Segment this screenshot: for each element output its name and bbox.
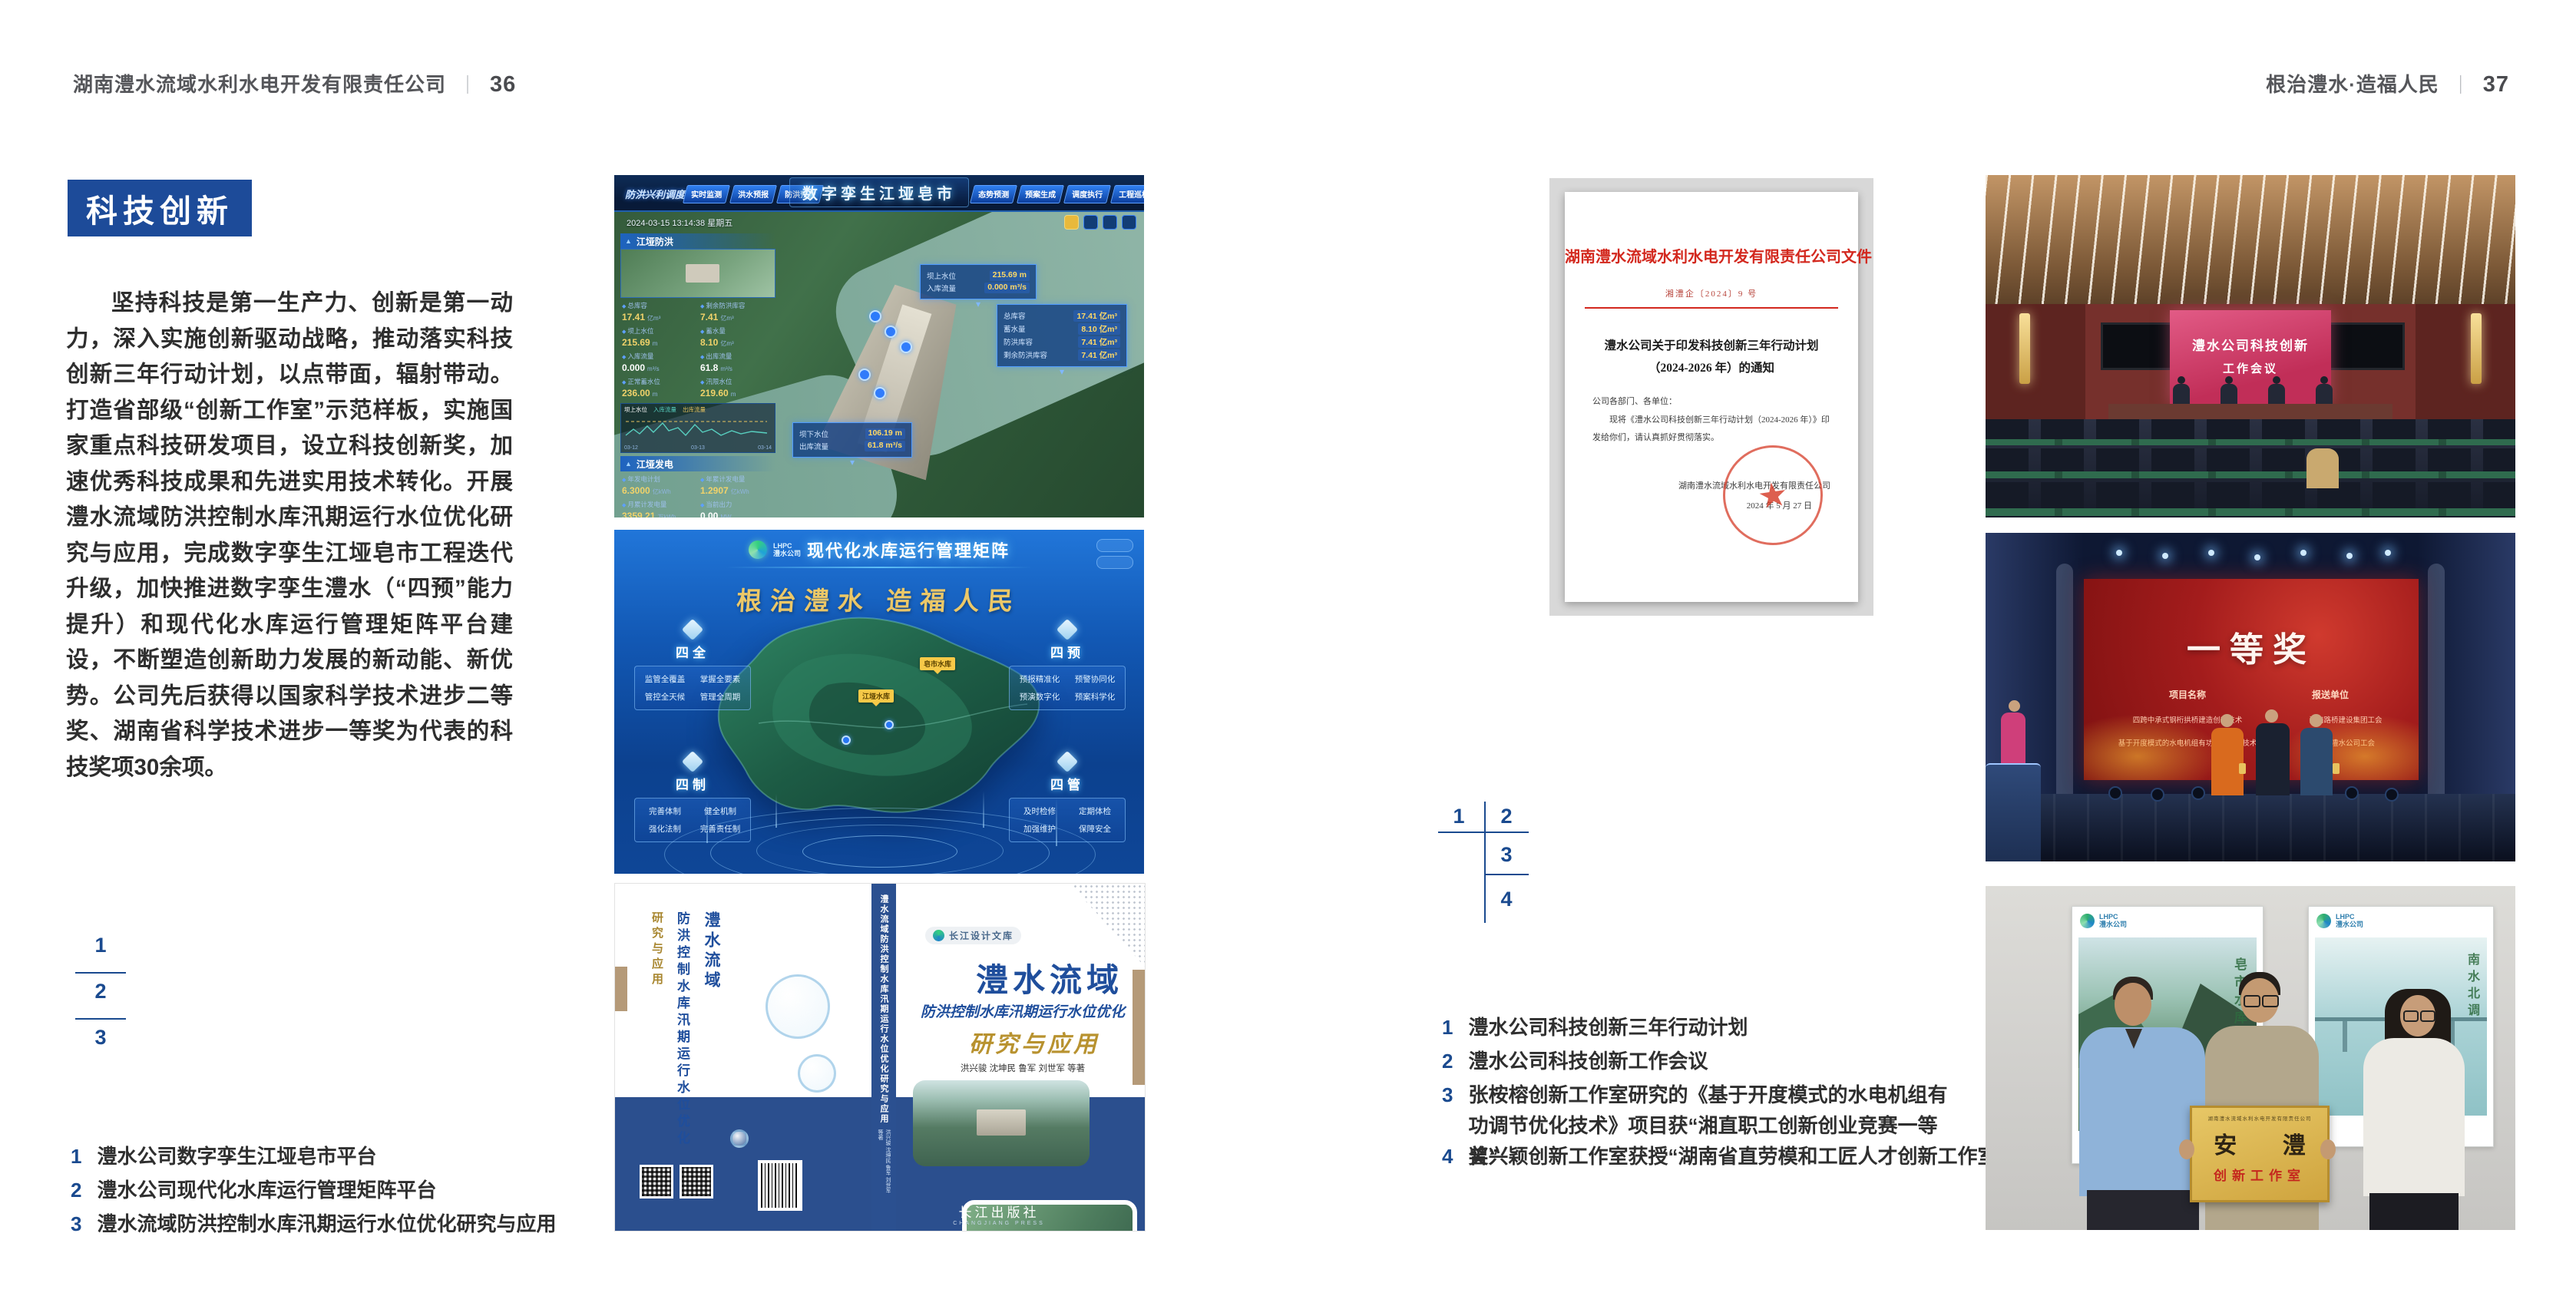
caption-number: 1 xyxy=(1442,1012,1453,1043)
wall-tv xyxy=(2326,322,2405,370)
screen-title-line2: 工作会议 xyxy=(2170,360,2331,376)
map-marker-zaoshi: 皂市水库 xyxy=(920,657,955,670)
stage-light-icon xyxy=(2162,553,2168,559)
map-dot xyxy=(842,736,851,745)
speaker-figure xyxy=(2316,384,2333,404)
caption-text: 澧水公司科技创新工作会议 xyxy=(1468,1046,1708,1076)
desk-mat-row xyxy=(1986,508,2515,516)
twin-sidebar: 江垭防洪 总库容17.41亿m³ 剩余防洪库容7.41亿m³ 坝上水位215.6… xyxy=(620,233,775,511)
poster-logo: LHPC 澧水公司 xyxy=(2080,913,2127,928)
speaker-head xyxy=(2225,376,2233,384)
desk-mat-row xyxy=(1986,471,2515,478)
twin-datetime: 2024-03-15 13:14:38 星期五 xyxy=(627,217,732,229)
caption-number: 2 xyxy=(71,1175,81,1205)
floor-light-fixture xyxy=(2385,788,2399,802)
stat: 年发电计划6.3000亿kWh xyxy=(622,474,696,498)
speaker-figure xyxy=(2268,384,2285,404)
lhpc-logo-text: LHPC 澧水公司 xyxy=(2099,913,2127,928)
person-blue-polo xyxy=(2079,1027,2205,1196)
caption-text: 澧水公司数字孪生江垭皂市平台 xyxy=(97,1141,376,1172)
caption-number: 4 xyxy=(1442,1141,1453,1172)
person-trousers xyxy=(2369,1193,2459,1230)
poster-right-title: 南水北调 xyxy=(2462,953,2481,1045)
lhpc-logo-text: LHPC 澧水公司 xyxy=(773,542,801,557)
award-title: 一等奖 xyxy=(2084,622,2419,671)
screen-title-line1: 澧水公司科技创新 xyxy=(2170,335,2331,354)
meeting-screen: 澧水公司科技创新 工作会议 xyxy=(2170,310,2331,404)
chart-lines xyxy=(624,414,769,441)
figure-digital-twin-platform: 防洪兴利调度 实时监测 洪水预报 防洪预警 数字孪生江垭皂市 态势预测 预案生成… xyxy=(614,175,1144,517)
plaque-subtitle: 创新工作室 xyxy=(2192,1165,2327,1184)
right-index-vline xyxy=(1484,802,1486,923)
figure-award-ceremony-photo: 一等奖 项目名称 报送单位 四跨中承式钢桁拱桥建造创新技术 湖南路桥建设集团工会… xyxy=(1986,533,2515,861)
twin-title: 数字孪生江垭皂市 xyxy=(789,177,969,207)
callout-capacity: 总库容17.41 亿m³ 蓄水量8.10 亿m³ 防洪库容7.41 亿m³ 剩余… xyxy=(997,304,1127,367)
stat: 入库流量0.000m³/s xyxy=(622,352,696,375)
presenter-suit xyxy=(2256,723,2290,795)
water-drop-graphic xyxy=(730,1129,749,1148)
document-red-header: 湖南澧水流域水利水电开发有限责任公司文件 xyxy=(1565,244,1858,266)
water-level-chart: 坝上水位 入库流量 出库流量 03-12 03-13 03-14 xyxy=(620,403,775,453)
header-glow-line xyxy=(726,567,1033,568)
speaker-head xyxy=(2178,376,2185,384)
column-project: 项目名称 xyxy=(2130,688,2245,701)
right-index-1: 1 xyxy=(1443,805,1474,828)
back-accent-bar xyxy=(615,967,627,1011)
stat: 月累计发电量3359.21万kWh xyxy=(622,500,696,517)
tab-project-inspection: 工程巡检 xyxy=(1110,185,1144,203)
callout-downstream: 坝下水位106.19 m 出库流量61.8 m³/s xyxy=(792,422,912,458)
panel-siquan: 四全 监管全覆盖 掌握全要素 管控全天候 管理全周期 xyxy=(634,622,751,710)
caption-number: 1 xyxy=(71,1141,81,1172)
matrix-header: LHPC 澧水公司 现代化水库运行管理矩阵 xyxy=(749,537,1010,562)
user-icon xyxy=(1064,215,1079,230)
figure-innovation-meeting-photo: 澧水公司科技创新 工作会议 xyxy=(1986,175,2515,517)
glasses-icon xyxy=(2403,1010,2419,1022)
lhpc-logo-icon xyxy=(2316,914,2331,928)
led-screen: 一等奖 项目名称 报送单位 四跨中承式钢桁拱桥建造创新技术 湖南路桥建设集团工会… xyxy=(2084,579,2419,780)
right-caption-1: 1 澧水公司科技创新三年行动计划 xyxy=(1442,1012,1748,1043)
light-pillar xyxy=(775,794,777,828)
twin-header-bar: 防洪兴利调度 实时监测 洪水预报 防洪预警 数字孪生江垭皂市 态势预测 预案生成… xyxy=(614,175,1144,212)
left-index-3: 3 xyxy=(74,1026,127,1050)
twin-corner-icons xyxy=(1064,215,1136,230)
caption-number: 3 xyxy=(71,1208,81,1239)
glasses-icon xyxy=(2420,1010,2435,1022)
side-wall-right xyxy=(2416,304,2515,419)
front-title-main: 澧水流域 xyxy=(945,954,1123,1001)
caption-number: 3 xyxy=(1442,1080,1453,1110)
stat: 正常蓄水位236.00m xyxy=(622,377,696,400)
right-caption-2: 2 澧水公司科技创新工作会议 xyxy=(1442,1046,1708,1076)
audience-row xyxy=(1986,419,2515,439)
hand xyxy=(2320,1139,2336,1159)
front-authors: 洪兴骏 沈坤民 鲁军 刘世军 等著 xyxy=(911,1062,1134,1074)
innovation-plaque: 湖南澧水流域水利水电开发有限责任公司 安 澧 创新工作室 xyxy=(2190,1106,2330,1202)
tab-situation-forecast: 态势预测 xyxy=(970,185,1017,203)
gate-marker xyxy=(885,326,897,338)
wall-tv xyxy=(2101,322,2179,370)
stage-light-icon xyxy=(2116,550,2122,556)
brochure-spread: 湖南澧水流域水利水电开发有限责任公司｜36 科技创新 坚持科技是第一生产力、创新… xyxy=(0,0,2576,1306)
stage-light-icon xyxy=(2385,550,2391,556)
dam-thumbnail xyxy=(620,249,775,298)
caption-text: 澧水公司科技创新三年行动计划 xyxy=(1468,1012,1748,1043)
document-number: 湘澧企〔2024〕9 号 xyxy=(1565,287,1858,299)
speaker-figure xyxy=(2173,384,2190,404)
left-caption-3: 3 澧水流域防洪控制水库汛期运行水位优化研究与应用 xyxy=(71,1208,556,1239)
book-spine: 澧水流域防洪控制水库汛期运行水位优化研究与应用 洪兴骏 沈坤民 鲁军 刘世军 等… xyxy=(871,884,896,1231)
front-title-tail: 研究与应用 xyxy=(945,1025,1123,1059)
column-unit: 报送单位 xyxy=(2273,688,2388,701)
header-divider: ｜ xyxy=(458,75,478,96)
awardee-orange xyxy=(2211,728,2244,795)
right-index-3: 3 xyxy=(1491,843,1522,867)
wall-lamp-icon xyxy=(2019,313,2030,384)
light-pillar xyxy=(983,791,984,828)
right-index-hline-2 xyxy=(1485,874,1529,875)
water-drop-graphic xyxy=(766,974,830,1039)
left-caption-1: 1 澧水公司数字孪生江垭皂市平台 xyxy=(71,1141,376,1172)
bridge-pier xyxy=(2343,1021,2347,1052)
map-dot xyxy=(885,720,894,729)
gate-marker xyxy=(900,341,912,353)
tab-plan-generate: 预案生成 xyxy=(1017,185,1064,203)
press-logo-icon xyxy=(933,930,944,941)
lhpc-logo-icon xyxy=(749,541,767,559)
back-qr-codes xyxy=(640,1165,713,1199)
official-seal-icon: ★ xyxy=(1717,439,1830,552)
forecast-icon xyxy=(1057,619,1078,640)
chart-ticks: 03-12 03-13 03-14 xyxy=(624,445,772,451)
qr-code-icon xyxy=(680,1165,713,1199)
caption-text: 曾兴颖创新工作室获授“湖南省直劳模和工匠人才创新工作室” xyxy=(1468,1141,2007,1172)
light-pillar xyxy=(1056,798,1057,846)
host-head xyxy=(2009,700,2020,712)
right-page-number: 37 xyxy=(2483,72,2509,97)
front-title-sub: 防洪控制水库汛期运行水位优化 xyxy=(911,1000,1134,1021)
podium xyxy=(1986,763,2041,861)
stat: 汛限水位219.60m xyxy=(700,377,774,400)
header-divider: ｜ xyxy=(2452,75,2471,96)
document-title: 澧水公司关于印发科技创新三年行动计划（2024-2026 年）的通知 xyxy=(1596,335,1827,380)
ring-decoration xyxy=(802,835,957,868)
power-stats: 年发电计划6.3000亿kWh 年累计发电量1.2907亿kWh 月累计发电量3… xyxy=(620,471,775,517)
hand xyxy=(2179,1139,2194,1159)
water-drop-graphic xyxy=(798,1054,836,1093)
stat: 总库容17.41亿m³ xyxy=(622,301,696,324)
matrix-slogan: 根治澧水 造福人民 xyxy=(736,580,1023,617)
attendee-yellow-jacket xyxy=(2306,448,2339,488)
right-page-header: 根治澧水·造福人民｜37 xyxy=(2266,69,2509,98)
figure-official-document: 湖南澧水流域水利水电开发有限责任公司文件 湘澧企〔2024〕9 号 澧水公司关于… xyxy=(1549,178,1873,616)
audience-row xyxy=(1986,448,2515,471)
publisher-name: 长江出版社 xyxy=(907,1202,1091,1221)
trophy-icon xyxy=(2333,763,2340,774)
audience-area xyxy=(1986,419,2515,517)
slogan-text: 根治澧水·造福人民 xyxy=(2266,73,2439,96)
stage-pillar xyxy=(2428,564,2445,825)
speaker-head xyxy=(2320,376,2328,384)
matrix-title: 现代化水库运行管理矩阵 xyxy=(807,537,1010,562)
tab-realtime-monitor: 实时监测 xyxy=(683,185,730,203)
right-index-hline-1 xyxy=(1438,832,1529,833)
stat: 当前出力0.00MW xyxy=(700,500,774,517)
twin-tabs-right: 态势预测 预案生成 调度执行 工程巡检 xyxy=(972,185,1144,203)
left-index-1: 1 xyxy=(74,934,127,957)
floor-light-fixture xyxy=(2191,786,2205,800)
caption-number: 2 xyxy=(1442,1046,1453,1076)
presenter-head xyxy=(2265,709,2278,722)
section-badge: 科技创新 xyxy=(68,180,252,236)
poster-logo: LHPC 澧水公司 xyxy=(2316,913,2363,928)
figure-workstudio-plaque-photo: LHPC 澧水公司 皂市水库 LHPC 澧水公司 xyxy=(1986,886,2515,1230)
stat: 年累计发电量1.2907亿kWh xyxy=(700,474,774,498)
company-name: 湖南澧水流域水利水电开发有限责任公司 xyxy=(73,73,446,96)
person-white-tee xyxy=(2363,1038,2465,1196)
person-trousers xyxy=(2087,1190,2199,1230)
spine-authors: 洪兴骏 沈坤民 鲁军 刘世军 等著 xyxy=(876,1129,891,1199)
wall-lamp-icon xyxy=(2471,313,2482,384)
left-index-divider-2 xyxy=(75,1018,126,1020)
flood-panel-title: 江垭防洪 xyxy=(620,233,775,249)
stage-light-icon xyxy=(2208,550,2214,556)
document-body: 现将《澧水公司科技创新三年行动计划（2024-2026 年）》印发给你们，请认真… xyxy=(1592,412,1830,446)
speaker-figure xyxy=(2221,384,2237,404)
tab-dispatch-execute: 调度执行 xyxy=(1063,185,1111,203)
map-marker-jiangya: 江垭水库 xyxy=(858,689,894,703)
audience-row xyxy=(1986,482,2515,508)
layers-icon xyxy=(1083,215,1098,230)
chart-legend: 坝上水位 入库流量 出库流量 xyxy=(624,405,772,414)
tab-flood-forecast: 洪水预报 xyxy=(729,185,777,203)
head-table xyxy=(2108,404,2392,421)
back-cover-title: 澧水流域 防洪控制水库汛期运行水位优化 研究与应用 xyxy=(641,911,723,1149)
awardee-head xyxy=(2310,714,2323,727)
left-index-divider-1 xyxy=(75,972,126,974)
basin-map xyxy=(713,616,1043,827)
stage-light-icon xyxy=(2300,550,2306,556)
panel-button xyxy=(1096,539,1133,552)
barcode xyxy=(758,1160,802,1211)
floor-light-fixture xyxy=(2345,786,2359,800)
figure-reservoir-matrix-platform: LHPC 澧水公司 现代化水库运行管理矩阵 根治澧水 造福人民 皂市水库 xyxy=(614,530,1144,874)
left-index-2: 2 xyxy=(74,980,127,1003)
trophy-icon xyxy=(2239,763,2246,774)
right-caption-4: 4 曾兴颖创新工作室获授“湖南省直劳模和工匠人才创新工作室” xyxy=(1442,1141,2007,1172)
institution-icon xyxy=(682,751,703,772)
maintenance-icon xyxy=(1057,751,1078,772)
document-salutation: 公司各部门、各单位： xyxy=(1592,393,1830,411)
mode-label: 防洪兴利调度 xyxy=(625,187,685,201)
section-body-text: 坚持科技是第一生产力、创新是第一动力，深入实施创新驱动战略，推动落实科技创新三年… xyxy=(66,286,513,785)
plaque-org-line: 湖南澧水流域水利水电开发有限责任公司 xyxy=(2192,1114,2327,1122)
monitor-icon xyxy=(682,619,703,640)
stage-pillar xyxy=(2056,564,2073,825)
glasses-icon xyxy=(2262,995,2279,1007)
publisher-en: CHANGJIANG PRESS xyxy=(907,1221,1091,1226)
gate-marker xyxy=(869,310,881,322)
dam-photo xyxy=(913,1080,1090,1166)
lhpc-logo-icon xyxy=(2080,914,2095,928)
callout-upstream: 坝上水位215.69 m 入库流量0.000 m³/s xyxy=(920,264,1037,299)
stat: 剩余防洪库容7.41亿m³ xyxy=(700,301,774,324)
stage-floor xyxy=(1986,794,2515,861)
figure-book-cover: 澧水流域 防洪控制水库汛期运行水位优化 研究与应用 澧水流域防洪控制水库汛期运行… xyxy=(614,883,1146,1232)
awardee-blue xyxy=(2300,728,2333,795)
light-pillar xyxy=(706,800,708,843)
glasses-icon xyxy=(2244,995,2260,1007)
floor-light-fixture xyxy=(2151,788,2164,802)
caption-text: 澧水流域防洪控制水库汛期运行水位优化研究与应用 xyxy=(97,1208,556,1239)
flood-stats: 总库容17.41亿m³ 剩余防洪库容7.41亿m³ 坝上水位215.69m 蓄水… xyxy=(620,298,775,403)
gate-marker xyxy=(874,387,886,399)
document-paper: 湖南澧水流域水利水电开发有限责任公司文件 湘澧企〔2024〕9 号 澧水公司关于… xyxy=(1565,192,1858,602)
panel-siyu: 四预 预报精准化 预警协同化 预演数字化 预案科学化 xyxy=(1009,622,1126,710)
person-head xyxy=(2115,983,2151,1026)
alert-icon xyxy=(1122,215,1136,230)
stat: 坝上水位215.69m xyxy=(622,326,696,349)
stage-light-icon xyxy=(2346,553,2353,559)
gate-marker xyxy=(858,369,871,381)
spine-title: 澧水流域防洪控制水库汛期运行水位优化研究与应用 xyxy=(878,894,890,1125)
desk-mat-row xyxy=(1986,439,2515,445)
ceiling xyxy=(1986,175,2515,304)
series-badge: 长江设计文库 xyxy=(925,927,1021,944)
document-red-rule xyxy=(1585,307,1838,309)
stat: 出库流量61.8m³/s xyxy=(700,352,774,375)
stat: 蓄水量8.10亿m³ xyxy=(700,326,774,349)
floor-light-fixture xyxy=(2108,786,2122,800)
panel-button xyxy=(1096,556,1133,569)
awardee-head xyxy=(2221,714,2234,727)
qr-code-icon xyxy=(640,1165,673,1199)
stage-light-icon xyxy=(2254,554,2260,560)
right-index-2: 2 xyxy=(1491,805,1522,828)
front-accent-bar xyxy=(1133,970,1145,1085)
side-wall-left xyxy=(1986,304,2085,419)
publisher-mark: 长江出版社 CHANGJIANG PRESS xyxy=(907,1202,1091,1226)
plaque-name: 安 澧 xyxy=(2192,1126,2327,1160)
left-page-header: 湖南澧水流域水利水电开发有限责任公司｜36 xyxy=(73,69,516,98)
gold-glow xyxy=(2084,714,2222,780)
right-index-4: 4 xyxy=(1491,888,1522,911)
caption-text: 澧水公司现代化水库运行管理矩阵平台 xyxy=(97,1175,436,1205)
speaker-head xyxy=(2273,376,2280,384)
power-panel-title: 江垭发电 xyxy=(620,456,775,471)
left-page-number: 36 xyxy=(490,72,516,97)
locate-icon xyxy=(1103,215,1117,230)
lhpc-logo-text: LHPC 澧水公司 xyxy=(2336,913,2363,928)
left-caption-2: 2 澧水公司现代化水库运行管理矩阵平台 xyxy=(71,1175,436,1205)
